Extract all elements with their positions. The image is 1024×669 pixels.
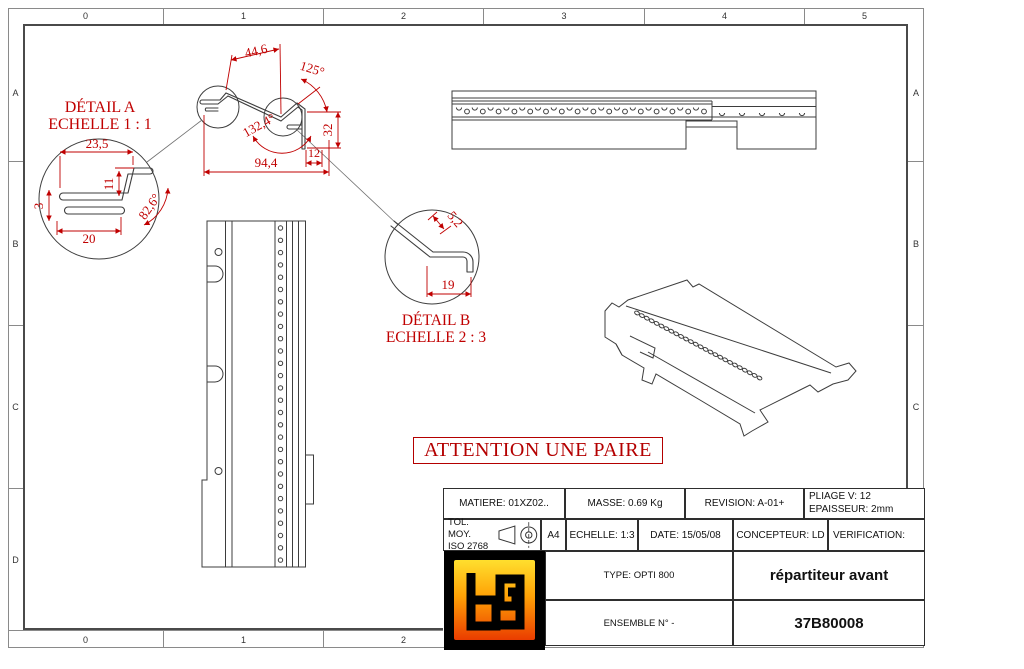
attention-note-text: ATTENTION UNE PAIRE xyxy=(424,439,652,462)
date-value: DATE: 15/05/08 xyxy=(650,530,720,541)
detail-b-title: DÉTAIL B xyxy=(402,312,470,329)
detail-a-circle xyxy=(39,139,159,259)
edge-notch xyxy=(207,366,223,382)
masse-value: MASSE: 0.69 Kg xyxy=(587,498,662,509)
detail-a-title: DÉTAIL A xyxy=(65,97,136,116)
dim-profile-height: 32 xyxy=(320,124,335,137)
part-number-cell: 37B80008 xyxy=(733,600,925,646)
tolerance-cell: TOL. MOY. ISO 2768 xyxy=(443,519,541,551)
profile-view: 44,6 125° 132,4° 94,4 12 32 xyxy=(147,41,398,225)
date-cell: DATE: 15/05/08 xyxy=(638,519,733,551)
dim-detail-b-width: 19 xyxy=(442,277,455,292)
dim-profile-top: 44,6 xyxy=(243,41,269,61)
verification-cell: VERIFICATION: xyxy=(828,519,925,551)
projection-symbol-icon xyxy=(496,522,540,548)
tolerance-line1: TOL. MOY. xyxy=(448,517,494,541)
dim-detail-a-width-bottom: 20 xyxy=(83,231,96,246)
pliage-value: PLIAGE V: 12 xyxy=(809,491,871,504)
type-value: TYPE: OPTI 800 xyxy=(604,570,675,581)
revision-value: REVISION: A-01+ xyxy=(705,498,785,509)
concepteur-cell: CONCEPTEUR: LD xyxy=(733,519,828,551)
designation-value: répartiteur avant xyxy=(770,567,888,584)
dim-profile-angle-left: 132,4° xyxy=(240,110,277,140)
detail-b-leader-line xyxy=(297,130,398,225)
dim-detail-a-width-top: 23,5 xyxy=(86,136,109,151)
concepteur-value: CONCEPTEUR: LD xyxy=(736,530,824,541)
detail-a-view: 23,5 11 3 20 82,6° DÉTAIL A ECHELLE 1 : … xyxy=(31,97,168,259)
designation-cell: répartiteur avant xyxy=(733,551,925,600)
echelle-value: ECHELLE: 1:3 xyxy=(569,530,634,541)
company-logo xyxy=(444,551,545,650)
format-cell: A4 xyxy=(541,519,566,551)
part-number-value: 37B80008 xyxy=(794,615,863,632)
echelle-cell: ECHELLE: 1:3 xyxy=(566,519,638,551)
dim-detail-a-height: 11 xyxy=(101,178,116,191)
ensemble-cell: ENSEMBLE N° - xyxy=(545,600,733,646)
dim-profile-angle-right: 125° xyxy=(298,58,326,80)
detail-b-view: 5,2 19 DÉTAIL B ECHELLE 2 : 3 xyxy=(385,208,486,346)
dim-detail-b-flange: 5,2 xyxy=(444,208,466,230)
part-iso-view xyxy=(605,280,856,436)
matiere-cell: MATIERE: 01XZ02.. xyxy=(443,488,565,519)
detail-a-marker-circle xyxy=(197,86,239,128)
masse-cell: MASSE: 0.69 Kg xyxy=(565,488,685,519)
revision-cell: REVISION: A-01+ xyxy=(685,488,804,519)
logo-bg-glyphs xyxy=(444,551,545,650)
epaisseur-value: EPAISSEUR: 2mm xyxy=(809,504,893,517)
ensemble-value: ENSEMBLE N° - xyxy=(604,618,675,629)
matiere-value: MATIERE: 01XZ02.. xyxy=(459,498,549,509)
pliage-cell: PLIAGE V: 12 EPAISSEUR: 2mm xyxy=(804,488,925,519)
attention-note: ATTENTION UNE PAIRE xyxy=(413,437,663,464)
detail-b-scale: ECHELLE 2 : 3 xyxy=(386,329,487,346)
format-value: A4 xyxy=(547,530,559,541)
type-cell: TYPE: OPTI 800 xyxy=(545,551,733,600)
part-plan-view xyxy=(202,221,314,567)
detail-a-leader-line xyxy=(147,120,202,162)
dim-detail-a-thickness: 3 xyxy=(31,203,46,210)
side-tab xyxy=(306,455,314,504)
verification-value: VERIFICATION: xyxy=(833,530,905,541)
detail-a-scale: ECHELLE 1 : 1 xyxy=(48,116,152,133)
dim-profile-overall: 94,4 xyxy=(255,155,278,170)
drawing-sheet: 0 1 2 3 4 5 0 1 2 A B C D A B C D xyxy=(0,0,1024,669)
edge-notch xyxy=(207,266,223,282)
part-side-view xyxy=(452,91,816,149)
